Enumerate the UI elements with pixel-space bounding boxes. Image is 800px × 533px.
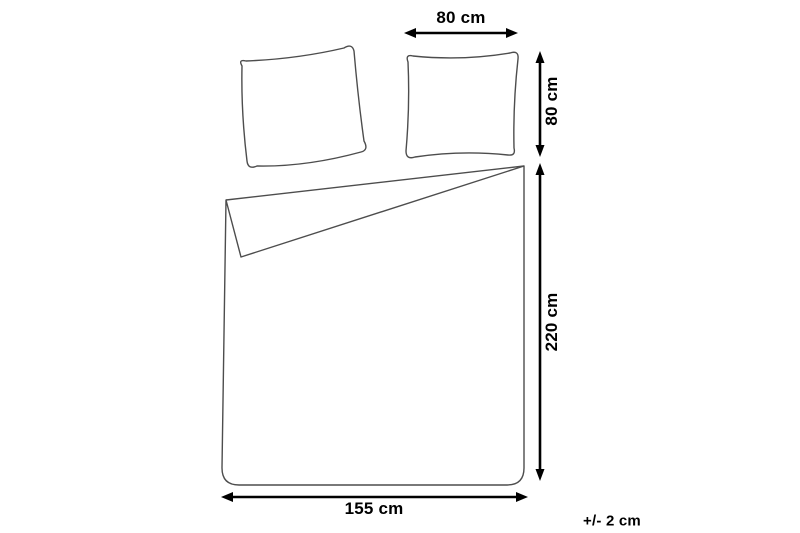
arrowhead-left-icon — [404, 28, 416, 38]
arrowhead-right-icon — [506, 28, 518, 38]
arrowhead-right-icon — [516, 492, 528, 502]
duvet-outline — [222, 166, 524, 485]
duvet-fold-edge — [226, 166, 524, 200]
right-pillow-outline — [406, 52, 518, 158]
arrowhead-down-icon — [536, 469, 545, 481]
tolerance-label: +/- 2 cm — [583, 513, 641, 530]
pillow-width-arrow — [404, 28, 518, 38]
arrowhead-left-icon — [221, 492, 233, 502]
dimension-diagram: 80 cm 80 cm 220 cm 155 cm +/- 2 cm — [0, 0, 800, 533]
pillow-width-label: 80 cm — [436, 8, 485, 28]
arrowhead-up-icon — [536, 163, 545, 175]
arrowhead-up-icon — [536, 51, 545, 63]
duvet-width-label: 155 cm — [345, 499, 404, 519]
duvet-length-label: 220 cm — [542, 293, 562, 352]
pillow-height-label: 80 cm — [542, 76, 562, 125]
arrowhead-down-icon — [536, 145, 545, 157]
left-pillow-outline — [241, 46, 366, 167]
diagram-canvas — [0, 0, 800, 533]
